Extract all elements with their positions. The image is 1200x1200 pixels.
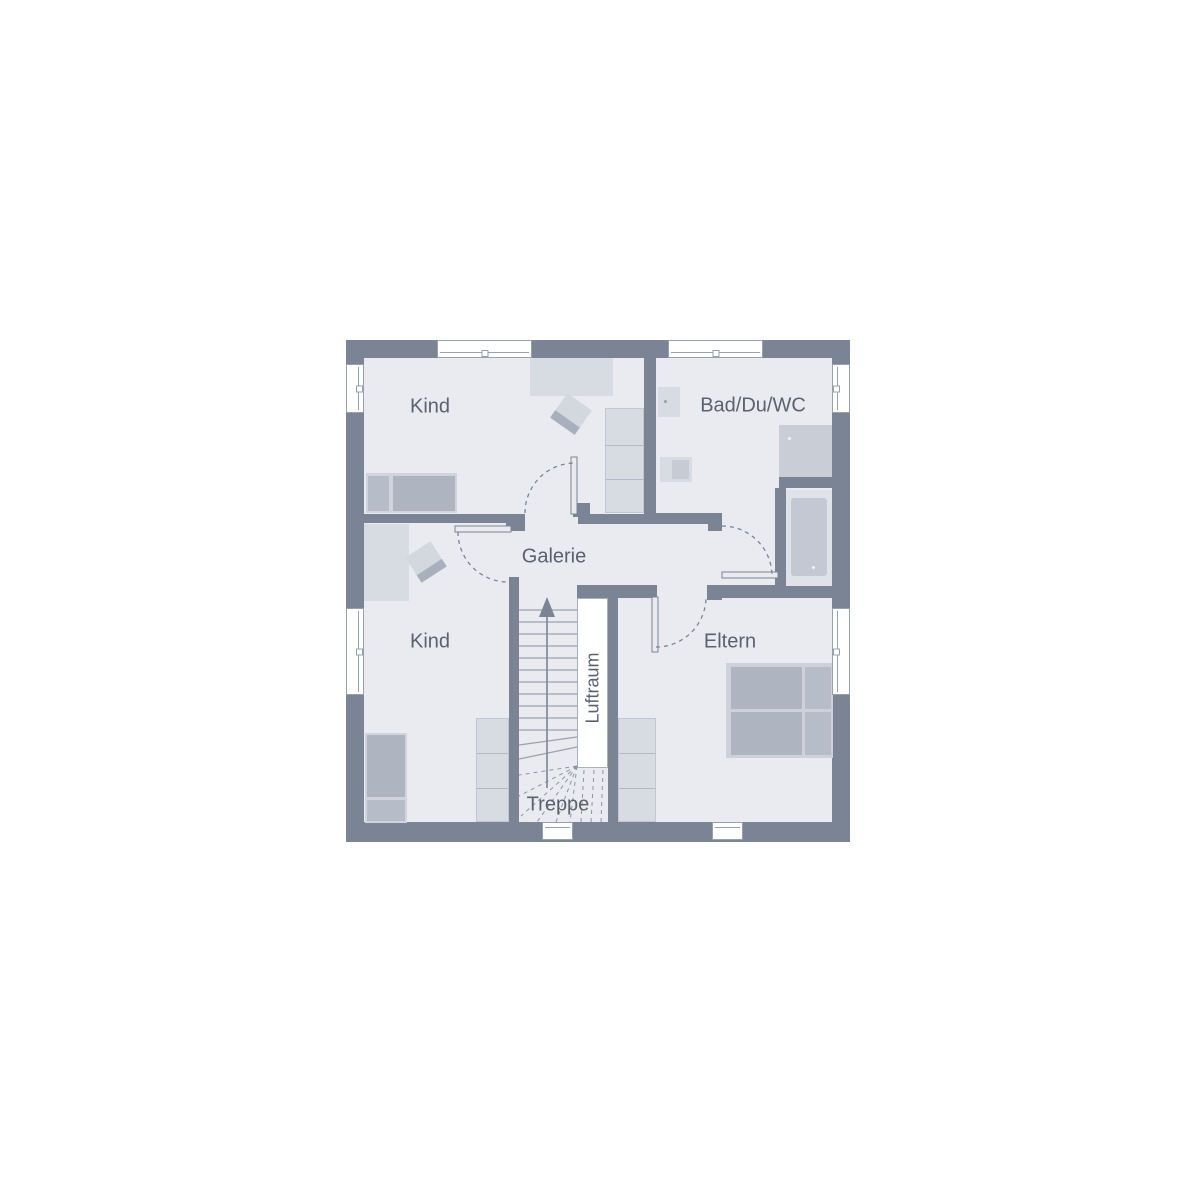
label-kind-top: Kind xyxy=(410,396,450,419)
desk-kind-bottom xyxy=(364,524,409,601)
wall-bad-south-stub xyxy=(708,513,722,531)
wall-kindtop-galerie-east xyxy=(578,514,644,524)
label-luftraum: Luftraum xyxy=(583,652,604,723)
label-eltern: Eltern xyxy=(704,631,756,654)
window-handle xyxy=(356,648,363,655)
window-handle xyxy=(356,385,363,392)
bed-kind-bottom xyxy=(365,733,407,823)
window-top-kind xyxy=(437,340,532,358)
basin-faucet xyxy=(664,400,667,403)
wardrobe-eltern xyxy=(618,718,656,822)
bed-pillow xyxy=(805,667,831,709)
window-bottom-eltern xyxy=(712,822,743,840)
bed-kind-top xyxy=(366,473,457,513)
bed-mattress xyxy=(731,712,802,755)
desk-kind-top xyxy=(530,358,613,396)
label-treppe: Treppe xyxy=(527,794,590,817)
window-right-eltern xyxy=(832,608,850,695)
bathtub xyxy=(786,490,832,586)
window-handle xyxy=(481,350,488,357)
window-right-bad xyxy=(832,364,850,413)
wardrobe-kind-bottom xyxy=(476,718,509,822)
wardrobe-shelf xyxy=(619,788,655,789)
window-bottom-treppe xyxy=(542,822,573,840)
wall-eltern-north-stub xyxy=(707,585,722,600)
label-bad: Bad/Du/WC xyxy=(700,395,806,418)
window-pane xyxy=(715,827,740,828)
toilet-bowl xyxy=(672,460,689,479)
window-handle xyxy=(712,350,719,357)
wardrobe-shelf xyxy=(619,753,655,754)
wardrobe-shelf xyxy=(477,788,508,789)
window-left-kind-top xyxy=(346,364,364,413)
bed-mattress xyxy=(393,476,455,511)
bed-pillow xyxy=(368,476,389,511)
bed-mattress xyxy=(367,735,405,797)
wall-kind-bad-divider xyxy=(644,358,656,513)
bed-eltern xyxy=(726,663,833,758)
window-handle xyxy=(833,385,840,392)
cabinet-kind-top xyxy=(605,408,644,513)
bed-mattress xyxy=(731,667,802,709)
bed-pillow xyxy=(367,800,405,821)
label-galerie: Galerie xyxy=(522,546,586,569)
bathtub-inner xyxy=(791,498,827,576)
toilet xyxy=(660,457,692,482)
wall-kind-kind-divider xyxy=(363,514,525,523)
window-left-kind-bottom xyxy=(346,608,364,695)
window-top-bad xyxy=(668,340,763,358)
wall-shower-south xyxy=(779,477,832,488)
shower-tray xyxy=(779,425,832,477)
wardrobe-shelf xyxy=(477,753,508,754)
cabinet-shelf xyxy=(606,479,643,480)
floorplan-canvas: Kind Bad/Du/WC Galerie Kind Eltern Trepp… xyxy=(0,0,1200,1200)
wall-tub-west xyxy=(775,488,786,598)
wall-stair-west xyxy=(509,577,519,823)
bed-pillow xyxy=(805,712,831,755)
shower-drain xyxy=(788,437,791,440)
label-kind-bottom: Kind xyxy=(410,631,450,654)
cabinet-shelf xyxy=(606,445,643,446)
wall-stair-east xyxy=(608,585,618,823)
wall-kind-divider-stub xyxy=(506,514,525,531)
window-handle xyxy=(833,648,840,655)
window-pane xyxy=(545,827,570,828)
bathtub-drain xyxy=(812,566,815,569)
washbasin xyxy=(658,387,680,417)
